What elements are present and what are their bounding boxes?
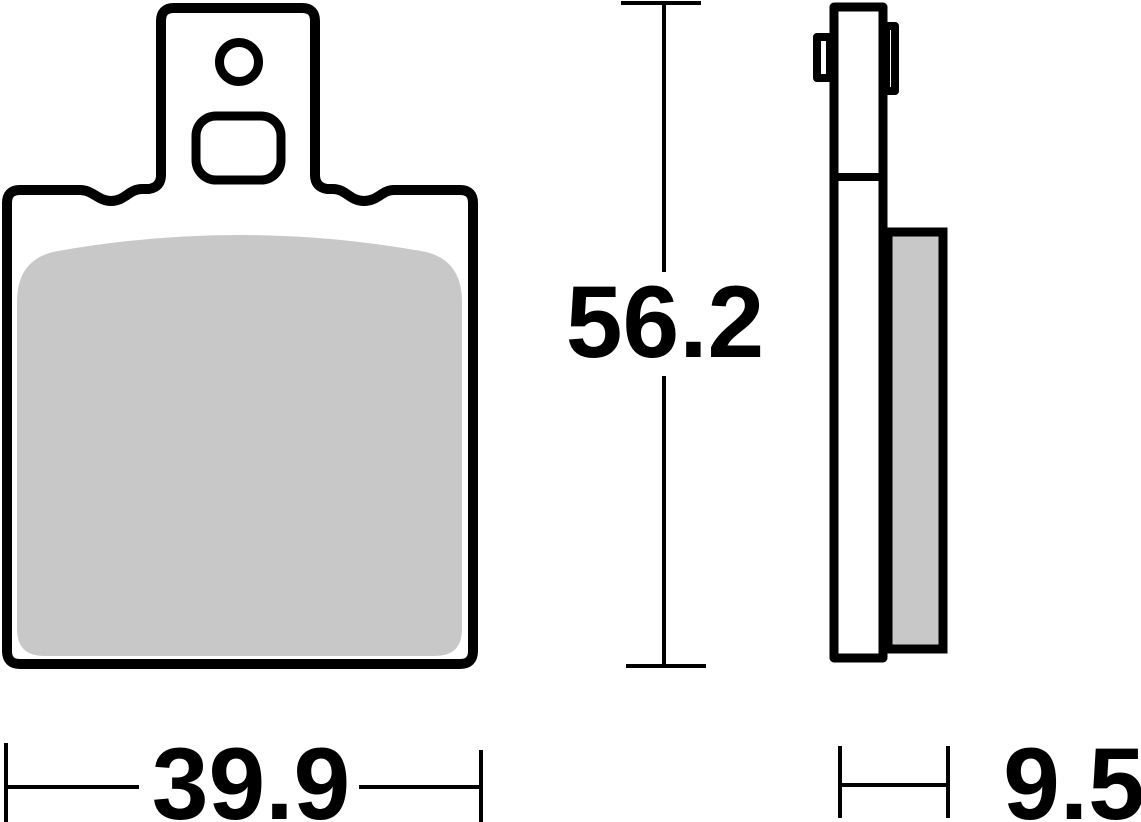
friction-pad-side [888, 232, 943, 649]
brake-pad-technical-drawing: 56.2 39.9 9.5 [0, 0, 1141, 822]
dimension-height: 56.2 [566, 3, 765, 666]
side-backing-plate [834, 7, 883, 658]
technical-drawing-canvas: 56.2 39.9 9.5 [0, 0, 1141, 822]
friction-pad-front [17, 235, 462, 656]
side-right-lug [886, 26, 895, 91]
height-dim-label: 56.2 [566, 265, 765, 379]
width-dim-label: 39.9 [152, 727, 351, 822]
thickness-dim-label: 9.5 [1003, 727, 1141, 822]
dimension-width: 39.9 [6, 727, 481, 822]
side-view [817, 7, 943, 658]
oblong-mounting-hole [196, 116, 281, 180]
round-mounting-hole [220, 43, 259, 82]
dimension-thickness: 9.5 [840, 727, 1141, 822]
side-left-lug [817, 37, 830, 78]
front-view [7, 8, 473, 664]
